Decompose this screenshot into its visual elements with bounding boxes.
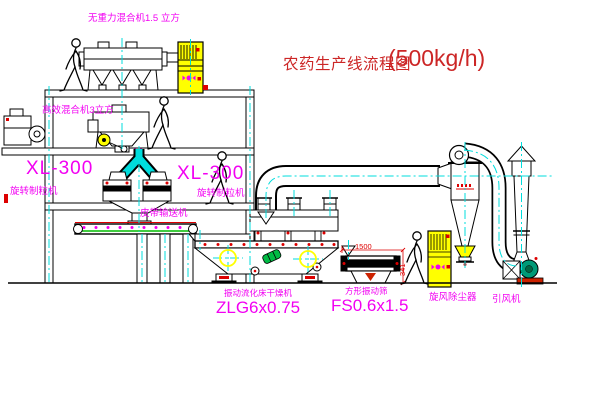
label-granulator-left-name: 旋转制粒机 (10, 187, 58, 197)
label-cyclone: 旋风除尘器 (429, 293, 477, 303)
label-gravity-free-mixer: 无重力混合机1.5 立方 (88, 14, 180, 24)
worker-ground (401, 232, 428, 284)
square-vibrating-sieve-machine (340, 246, 405, 285)
gravity-free-mixer-machine (79, 42, 179, 90)
dimension-sieve-height: 341 (398, 263, 407, 276)
label-belt-conveyor: 皮带输送机 (140, 209, 188, 219)
label-dryer-name: 振动流化床干燥机 (224, 289, 292, 298)
label-dryer-model: ZLG6x0.75 (216, 299, 300, 316)
diagram-capacity: (500kg/h) (388, 45, 485, 72)
worker-second-floor (148, 97, 175, 149)
label-granulator-right-model: XL-300 (177, 164, 244, 183)
label-sieve-model: FS0.6x1.5 (331, 297, 409, 314)
label-high-efficiency-mixer: 高效混合机3立方 (42, 106, 114, 116)
label-granulator-right-name: 旋转制粒机 (197, 189, 245, 199)
label-granulator-left-model: XL-300 (26, 159, 93, 178)
dimension-sieve-length: 1500 (355, 242, 372, 251)
cad-flow-diagram: 农药生产线流程图 (500kg/h) 无重力混合机1.5 立方 高效混合机3立方… (0, 0, 600, 403)
bucket-elevator (178, 42, 208, 93)
label-sieve-name: 方形振动筛 (345, 287, 388, 296)
label-fan: 引风机 (492, 295, 521, 305)
control-cabinet (428, 231, 451, 287)
